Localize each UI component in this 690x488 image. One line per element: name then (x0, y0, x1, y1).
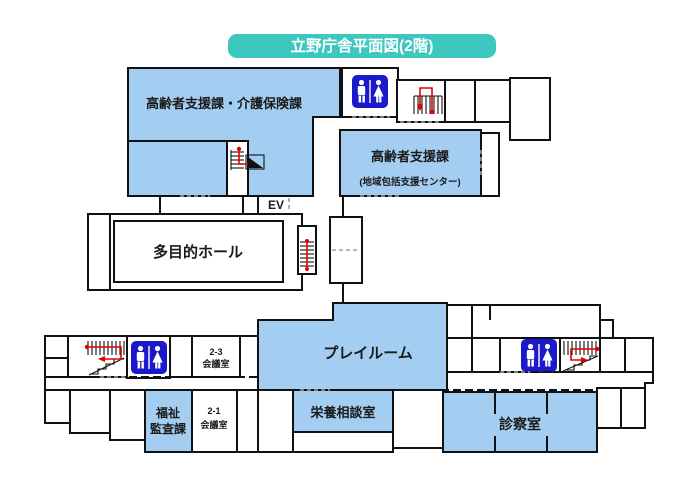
title-banner: 立野庁舎平面図(2階) (228, 34, 496, 58)
toilet-icon (352, 75, 388, 108)
room-label-welfare-audit-line2: 監査課 (150, 421, 187, 436)
route-dot (305, 267, 309, 271)
route-dot (305, 239, 309, 243)
central-corridor (330, 196, 362, 303)
right-upper-rooms (447, 305, 613, 338)
nutrition-porch (293, 432, 393, 452)
room-label-nutrition: 栄養相談室 (309, 405, 375, 420)
elevator-label: EV (268, 198, 284, 212)
room-label-meeting-2-1-line2: 会議室 (200, 419, 227, 430)
stairs-icon-hall-east (298, 226, 316, 274)
room-label-exam: 診察室 (499, 416, 541, 432)
room-multipurpose-hall: 多目的ホール (88, 214, 302, 290)
restroom-upper (342, 68, 398, 117)
room-label-playroom: プレイルーム (323, 345, 413, 362)
room-elderly-care-insurance: 高齢者支援課・介護保険課 (128, 68, 340, 196)
toilet-icon (521, 339, 557, 372)
bottom-band: 福祉 監査課 2-1 会議室 栄養相談室 診察室 (45, 388, 645, 452)
room-exam: 診察室 (443, 392, 597, 452)
route-dot (595, 347, 599, 351)
floor-plan-canvas: 立野庁舎平面図(2階) 高齢者支援課・介護保険課 (0, 0, 690, 488)
room-label-multipurpose-hall: 多目的ホール (153, 243, 243, 261)
route-dot (237, 147, 241, 151)
right-middle-band (447, 338, 653, 390)
room-welfare-audit: 福祉 監査課 (145, 390, 192, 452)
toilet-icon (131, 341, 167, 374)
route-dot (430, 110, 434, 114)
room-elderly-support: 高齢者支援課 (地域包括支援センター) (340, 130, 481, 196)
room-label-elderly-care-insurance: 高齢者支援課・介護保険課 (146, 96, 303, 111)
room-label-meeting-2-1-line1: 2-1 (207, 406, 220, 416)
room-meeting-2-1: 2-1 会議室 (192, 390, 237, 452)
room-label-elderly-support: 高齢者支援課 (371, 149, 450, 164)
elevator-zone: EV (160, 196, 289, 214)
room-nutrition: 栄養相談室 (293, 390, 393, 452)
route-dot (85, 345, 89, 349)
floor-plan-page: 立野庁舎平面図(2階) 高齢者支援課・介護保険課 (0, 0, 690, 488)
page-title: 立野庁舎平面図(2階) (291, 36, 434, 55)
room-sublabel-elderly-support: (地域包括支援センター) (359, 176, 460, 188)
room-label-meeting-2-3-line1: 2-3 (209, 347, 222, 357)
room-label-welfare-audit-line1: 福祉 (155, 405, 180, 420)
room-playroom: プレイルーム (258, 303, 447, 390)
room-label-meeting-2-3-line2: 会議室 (202, 358, 229, 369)
